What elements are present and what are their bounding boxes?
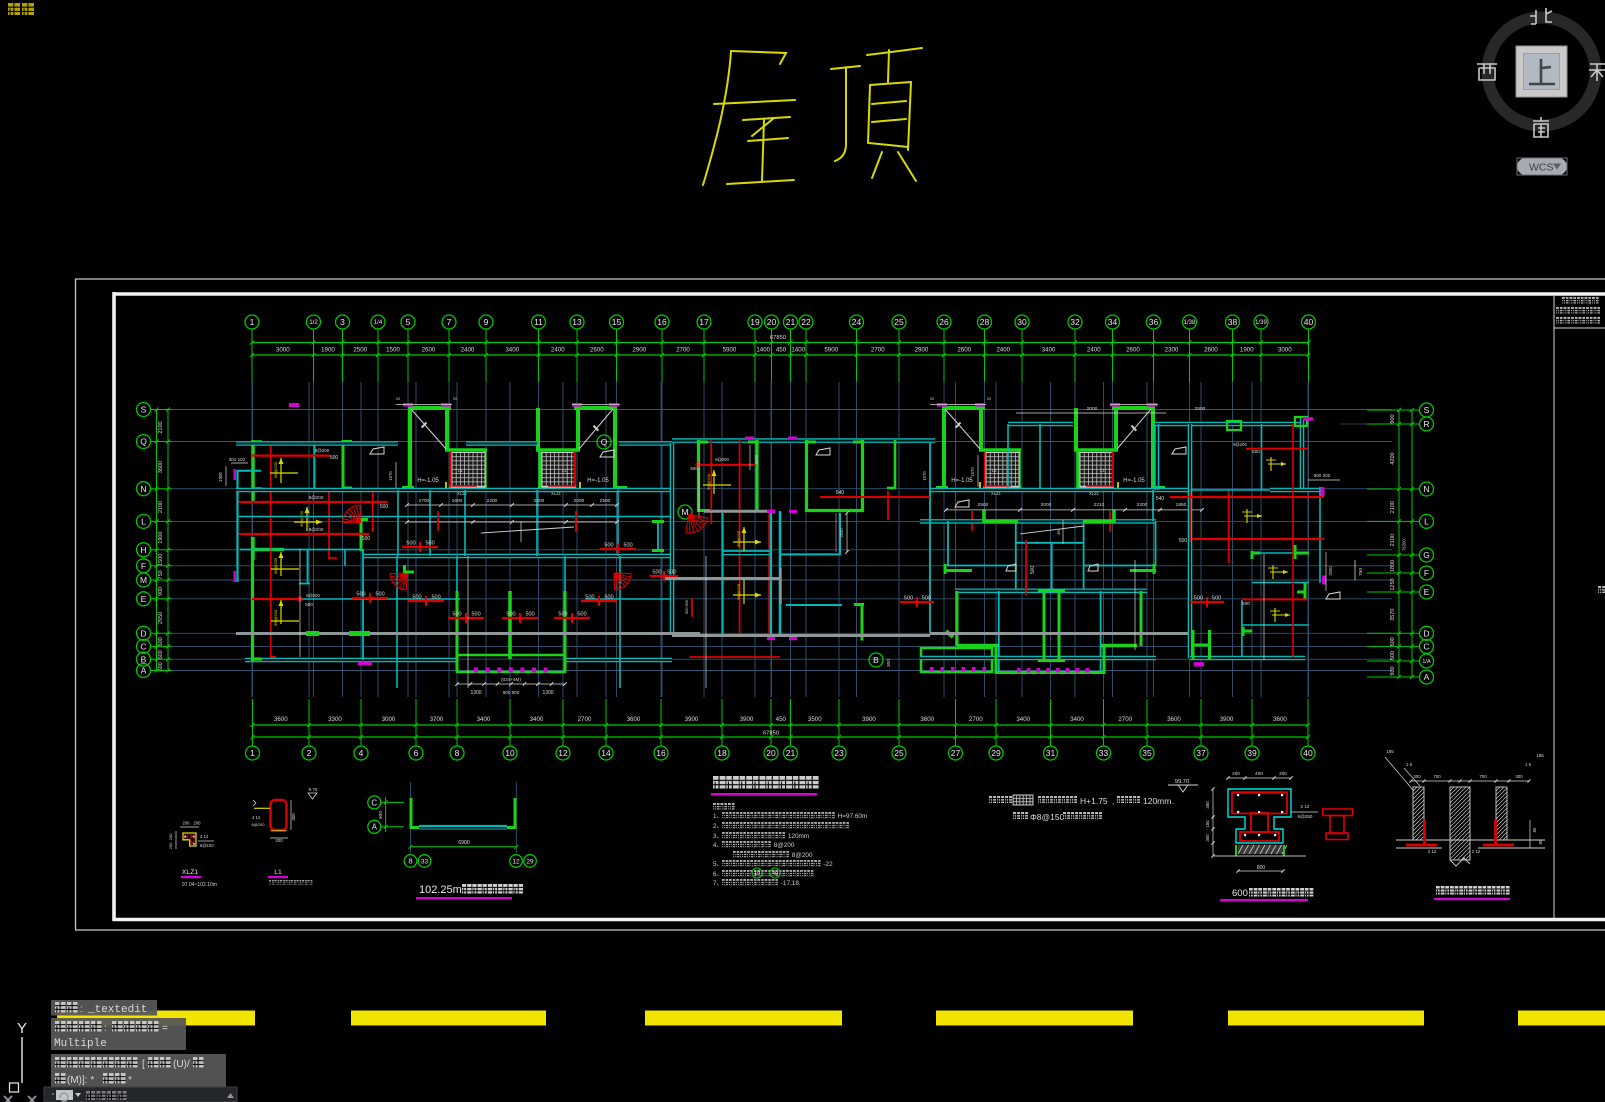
svg-text:36: 36 <box>1149 317 1159 327</box>
svg-text:97.04~102.10m: 97.04~102.10m <box>182 882 217 888</box>
svg-text:3570: 3570 <box>1390 609 1396 621</box>
svg-text:3500: 3500 <box>808 716 822 723</box>
svg-text:200: 200 <box>168 842 173 849</box>
svg-text:8: 8 <box>408 857 412 866</box>
svg-text:500: 500 <box>452 612 461 618</box>
svg-text:34: 34 <box>1108 317 1118 327</box>
svg-text:99.70: 99.70 <box>1175 779 1190 785</box>
svg-text:3000: 3000 <box>276 347 290 354</box>
svg-text:40: 40 <box>1303 748 1313 758</box>
svg-text:6@200: 6@200 <box>252 822 266 827</box>
svg-text:500: 500 <box>605 595 614 601</box>
svg-text:5: 5 <box>406 317 411 327</box>
svg-text:3600: 3600 <box>920 716 934 723</box>
svg-text:21: 21 <box>786 317 796 327</box>
svg-text:8@200: 8@200 <box>306 593 320 598</box>
svg-text:4 14: 4 14 <box>252 815 261 820</box>
svg-text:Q: Q <box>601 437 608 447</box>
svg-text:1/38: 1/38 <box>1184 320 1196 326</box>
svg-text:2100: 2100 <box>158 501 164 513</box>
svg-text:Y: Y <box>17 1020 27 1037</box>
svg-text:20: 20 <box>987 397 991 401</box>
svg-text:2: 2 <box>307 748 312 758</box>
svg-text:L1: L1 <box>992 468 997 473</box>
svg-text:-22: -22 <box>823 861 833 868</box>
svg-text:2600: 2600 <box>422 347 436 354</box>
svg-text:D: D <box>1423 628 1429 638</box>
svg-text:1/4: 1/4 <box>374 320 383 326</box>
svg-text:3 14: 3 14 <box>200 834 209 839</box>
svg-text:1、: 1、 <box>713 813 723 820</box>
svg-text:8@200: 8@200 <box>715 457 729 462</box>
svg-text:2200: 2200 <box>487 498 498 504</box>
svg-text:900: 900 <box>1390 666 1396 675</box>
svg-text:450: 450 <box>776 716 787 723</box>
svg-text:12: 12 <box>558 748 568 758</box>
svg-text:300: 300 <box>1515 774 1523 779</box>
svg-text:8@200: 8@200 <box>774 842 795 849</box>
svg-text:2200: 2200 <box>1137 502 1148 508</box>
svg-text:750: 750 <box>158 570 164 579</box>
svg-text:1400: 1400 <box>756 347 770 354</box>
svg-text:[: [ <box>142 1059 145 1070</box>
svg-text:2900: 2900 <box>915 347 929 354</box>
svg-text:3700: 3700 <box>430 716 444 723</box>
svg-text:20: 20 <box>930 397 934 401</box>
svg-text:3400: 3400 <box>530 716 544 723</box>
svg-text:4200: 4200 <box>1390 452 1396 464</box>
svg-text:31: 31 <box>1046 748 1056 758</box>
svg-text:22: 22 <box>801 317 811 327</box>
svg-text:1570: 1570 <box>754 454 759 465</box>
svg-text:9: 9 <box>484 317 489 327</box>
svg-text:=: = <box>162 1023 168 1034</box>
svg-text:800: 800 <box>1257 865 1266 871</box>
svg-text:500: 500 <box>1212 596 1221 602</box>
svg-text:2700: 2700 <box>1118 716 1132 723</box>
svg-text:,: , <box>1112 797 1114 806</box>
svg-text:500: 500 <box>1252 449 1260 454</box>
svg-text:500: 500 <box>578 612 587 618</box>
svg-text:500: 500 <box>624 543 633 549</box>
svg-text:29: 29 <box>991 748 1001 758</box>
svg-text:1900: 1900 <box>218 472 223 482</box>
svg-text:1500: 1500 <box>158 554 164 566</box>
svg-text:1: 1 <box>250 317 255 327</box>
svg-text:500: 500 <box>406 541 415 547</box>
svg-text:500: 500 <box>585 595 594 601</box>
svg-text:2900: 2900 <box>632 347 646 354</box>
svg-text:29: 29 <box>526 858 534 865</box>
svg-text:L: L <box>1424 517 1429 527</box>
svg-text:200: 200 <box>1232 771 1240 776</box>
svg-text:500: 500 <box>1242 601 1250 606</box>
svg-text:1400: 1400 <box>791 347 805 354</box>
svg-text:2500: 2500 <box>353 347 367 354</box>
svg-text:B: B <box>873 655 879 665</box>
svg-text:H+1.75: H+1.75 <box>1080 796 1108 806</box>
svg-text:C: C <box>140 642 146 652</box>
svg-text:2000: 2000 <box>1328 566 1333 576</box>
svg-text:200: 200 <box>194 821 202 826</box>
svg-text:1: 1 <box>250 748 255 758</box>
svg-text:150: 150 <box>1205 820 1210 828</box>
svg-text:R: R <box>1423 419 1429 429</box>
svg-text:H=-1.05: H=-1.05 <box>1123 478 1145 484</box>
svg-text:1600: 1600 <box>452 498 463 504</box>
svg-text:19: 19 <box>750 317 760 327</box>
svg-text:N: N <box>1423 484 1429 494</box>
svg-text:11: 11 <box>534 317 543 327</box>
svg-text:500: 500 <box>526 612 535 618</box>
svg-text:8@200: 8@200 <box>315 448 330 453</box>
svg-text:1250: 1250 <box>1390 578 1396 590</box>
svg-text:6@100: 6@100 <box>200 843 214 848</box>
svg-text:4、: 4、 <box>713 842 723 849</box>
svg-text:E: E <box>141 594 147 604</box>
svg-text:8: 8 <box>455 748 460 758</box>
svg-text:120mm: 120mm <box>788 833 809 840</box>
svg-text:25: 25 <box>894 317 904 327</box>
svg-text:S: S <box>141 405 147 415</box>
svg-text:*: * <box>128 1075 132 1086</box>
svg-text:3900: 3900 <box>1220 716 1234 723</box>
svg-text:600: 600 <box>158 637 164 646</box>
svg-text:85: 85 <box>1538 839 1543 844</box>
svg-text:500 500: 500 500 <box>685 600 689 614</box>
svg-text:3900: 3900 <box>740 716 754 723</box>
svg-text:14: 14 <box>601 748 611 758</box>
svg-text:500: 500 <box>426 541 435 547</box>
svg-text:37: 37 <box>1196 748 1206 758</box>
svg-text:2700: 2700 <box>419 498 430 504</box>
svg-text:23: 23 <box>834 748 844 758</box>
svg-text:1500: 1500 <box>386 347 400 354</box>
svg-text:1570: 1570 <box>388 471 393 481</box>
svg-text:24: 24 <box>852 317 862 327</box>
svg-text:38: 38 <box>1228 317 1238 327</box>
svg-text:500: 500 <box>305 602 313 607</box>
svg-text:M: M <box>681 507 688 517</box>
svg-text:2600: 2600 <box>1204 347 1218 354</box>
svg-text:9.75: 9.75 <box>309 787 318 792</box>
svg-text:350: 350 <box>1057 529 1061 535</box>
svg-text:2400: 2400 <box>461 347 475 354</box>
svg-text:L1: L1 <box>458 468 463 473</box>
svg-text:F: F <box>141 561 146 571</box>
svg-text:600: 600 <box>1390 637 1396 646</box>
svg-text:20: 20 <box>396 397 400 401</box>
svg-text:1/A: 1/A <box>1422 659 1431 665</box>
svg-text:67850: 67850 <box>770 335 786 341</box>
svg-text:6@250: 6@250 <box>1298 814 1313 819</box>
svg-text:2500: 2500 <box>600 498 611 504</box>
svg-text:900: 900 <box>378 811 384 819</box>
svg-text:13: 13 <box>572 317 582 327</box>
svg-text:500: 500 <box>380 504 389 510</box>
svg-text:900: 900 <box>158 587 164 596</box>
svg-text:Φ8@150: Φ8@150 <box>1030 812 1065 822</box>
svg-text:2700: 2700 <box>676 347 690 354</box>
svg-text:L1: L1 <box>1100 468 1105 473</box>
svg-text:B: B <box>141 654 147 664</box>
svg-text:2700: 2700 <box>969 716 983 723</box>
svg-text:15: 15 <box>612 317 622 327</box>
svg-text:Φ8@200: Φ8@200 <box>273 609 278 626</box>
svg-text:3600: 3600 <box>1167 716 1181 723</box>
svg-text:7: 7 <box>447 317 452 327</box>
svg-text:30: 30 <box>1017 317 1027 327</box>
svg-text:500: 500 <box>1194 596 1203 602</box>
svg-text:301 102: 301 102 <box>229 457 246 462</box>
svg-text:3600: 3600 <box>1273 716 1287 723</box>
svg-text:2300: 2300 <box>1165 347 1179 354</box>
svg-text:67850: 67850 <box>763 731 779 737</box>
svg-text:Φ8@200: Φ8@200 <box>273 557 278 574</box>
svg-text:3600: 3600 <box>274 716 288 723</box>
svg-text:500: 500 <box>376 592 385 598</box>
svg-text:E: E <box>1424 587 1430 597</box>
svg-text:8@200: 8@200 <box>309 495 324 500</box>
svg-text:700: 700 <box>1433 774 1441 779</box>
svg-text:2 12: 2 12 <box>1428 849 1437 854</box>
svg-text:400: 400 <box>291 813 296 821</box>
svg-text:500: 500 <box>904 596 913 602</box>
svg-text:33: 33 <box>1099 748 1109 758</box>
svg-text:C: C <box>371 798 377 807</box>
svg-text:18: 18 <box>717 748 727 758</box>
svg-text:20: 20 <box>767 317 777 327</box>
svg-text:2500: 2500 <box>1195 406 1206 412</box>
svg-text:2100: 2100 <box>1390 534 1396 546</box>
svg-text:500: 500 <box>652 570 661 576</box>
svg-text:500: 500 <box>330 455 339 461</box>
svg-text:102.25m: 102.25m <box>419 884 462 896</box>
svg-text:8@200: 8@200 <box>792 852 813 859</box>
svg-text:2 12: 2 12 <box>1301 804 1310 809</box>
svg-text:5900: 5900 <box>723 347 737 354</box>
svg-text:8@200: 8@200 <box>1233 442 1247 447</box>
svg-text:600: 600 <box>1390 651 1396 660</box>
svg-text:900 200: 900 200 <box>1314 473 1331 478</box>
svg-text:F: F <box>1424 568 1429 578</box>
svg-text:500: 500 <box>362 536 371 542</box>
svg-text:3600: 3600 <box>627 716 641 723</box>
svg-text:Multiple: Multiple <box>54 1038 107 1050</box>
svg-text:900: 900 <box>1390 414 1396 423</box>
svg-text:2600: 2600 <box>590 347 604 354</box>
svg-text:3000: 3000 <box>1278 347 1292 354</box>
svg-text:2200: 2200 <box>534 498 545 504</box>
svg-text:3400: 3400 <box>1016 716 1030 723</box>
svg-text:200: 200 <box>168 833 173 840</box>
svg-text:2100: 2100 <box>158 421 164 433</box>
svg-text:A: A <box>372 823 378 832</box>
svg-text:26: 26 <box>939 317 949 327</box>
svg-text:2、: 2、 <box>713 823 723 830</box>
svg-text:2600: 2600 <box>957 347 971 354</box>
svg-text:2 12: 2 12 <box>1472 849 1481 854</box>
svg-text:28: 28 <box>980 317 990 327</box>
svg-text:Φ8@200: Φ8@200 <box>299 510 304 527</box>
svg-text:35: 35 <box>1142 748 1152 758</box>
svg-text:2700: 2700 <box>871 347 885 354</box>
svg-text:27: 27 <box>951 748 961 758</box>
svg-text:1570: 1570 <box>922 471 927 481</box>
svg-text:H: H <box>140 545 146 555</box>
svg-text:2100: 2100 <box>1390 501 1396 513</box>
svg-text:3、: 3、 <box>713 833 723 840</box>
svg-text:300: 300 <box>886 659 892 667</box>
svg-text:_textedit: _textedit <box>87 1004 147 1016</box>
svg-text:3900: 3900 <box>685 716 699 723</box>
svg-text:16: 16 <box>656 748 666 758</box>
svg-text:-17,18.: -17,18. <box>781 880 801 887</box>
svg-text:40: 40 <box>772 871 778 877</box>
svg-text:600: 600 <box>1232 888 1248 899</box>
svg-text:500: 500 <box>432 595 441 601</box>
svg-text::: : <box>80 1004 83 1015</box>
svg-text:Φ8@200: Φ8@200 <box>736 530 741 547</box>
svg-text:1/39: 1/39 <box>1255 320 1267 326</box>
svg-text:3400: 3400 <box>1070 716 1084 723</box>
svg-text:200: 200 <box>275 838 283 843</box>
svg-text:S: S <box>1424 405 1430 415</box>
svg-text:500: 500 <box>1179 538 1188 544</box>
svg-text:32: 32 <box>1070 317 1080 327</box>
svg-text:1 6: 1 6 <box>1406 762 1413 767</box>
svg-text:19: 19 <box>754 871 760 877</box>
svg-text:500: 500 <box>472 612 481 618</box>
svg-text:(M)]: *: (M)]: * <box>67 1075 94 1086</box>
svg-text:G: G <box>1423 550 1430 560</box>
svg-text:(U)/: (U)/ <box>173 1059 190 1070</box>
svg-text:3300: 3300 <box>328 716 342 723</box>
svg-text:2700: 2700 <box>578 716 592 723</box>
svg-text:WCS: WCS <box>1529 162 1554 174</box>
svg-text:Φ8@200: Φ8@200 <box>736 583 741 600</box>
svg-text:20: 20 <box>766 748 776 758</box>
svg-text:2400: 2400 <box>1087 347 1101 354</box>
svg-text:400: 400 <box>1255 771 1263 776</box>
svg-text:16: 16 <box>657 317 667 327</box>
svg-text:1300: 1300 <box>542 690 553 696</box>
svg-text:200: 200 <box>183 821 191 826</box>
svg-text:1570: 1570 <box>970 467 975 477</box>
svg-text:20: 20 <box>453 397 457 401</box>
svg-text:1900: 1900 <box>321 347 335 354</box>
svg-text:M: M <box>140 575 147 585</box>
svg-text:Φ8@200: Φ8@200 <box>273 461 278 478</box>
svg-text:.: . <box>1172 797 1174 806</box>
svg-text:600 600: 600 600 <box>503 690 520 695</box>
svg-text:300: 300 <box>1413 774 1421 779</box>
svg-text:10: 10 <box>505 748 515 758</box>
svg-text:17: 17 <box>699 317 709 327</box>
svg-text:N: N <box>140 484 146 494</box>
svg-text:2500: 2500 <box>839 528 844 538</box>
svg-text:3400: 3400 <box>505 347 519 354</box>
svg-text:2600: 2600 <box>1126 347 1140 354</box>
svg-text:2210: 2210 <box>1094 502 1105 508</box>
svg-text:D: D <box>140 628 146 638</box>
svg-text:2500: 2500 <box>978 502 989 508</box>
svg-text:3400: 3400 <box>477 716 491 723</box>
svg-text:A: A <box>141 666 147 676</box>
svg-text:Φ8@200: Φ8@200 <box>706 473 711 490</box>
svg-text:300: 300 <box>1205 834 1210 842</box>
svg-text:350: 350 <box>1205 801 1210 809</box>
svg-text:8@200: 8@200 <box>309 527 324 532</box>
svg-text:2950: 2950 <box>158 612 164 624</box>
svg-text:500: 500 <box>558 612 567 618</box>
svg-text:L1: L1 <box>274 869 282 876</box>
svg-text:2400: 2400 <box>551 347 565 354</box>
svg-text:700: 700 <box>1479 774 1487 779</box>
svg-text:6: 6 <box>414 748 419 758</box>
svg-text:1/2: 1/2 <box>309 320 318 326</box>
svg-text:H=97.60m: H=97.60m <box>838 813 868 820</box>
svg-text:500: 500 <box>1030 566 1036 575</box>
svg-text:C: C <box>1423 642 1429 652</box>
svg-text:500: 500 <box>604 543 613 549</box>
svg-text:40: 40 <box>1304 317 1314 327</box>
svg-text:120mm: 120mm <box>1143 796 1171 806</box>
svg-text:2000: 2000 <box>1041 502 1052 508</box>
svg-text:2400: 2400 <box>996 347 1010 354</box>
svg-text:750: 750 <box>1358 568 1364 576</box>
svg-text:L1: L1 <box>562 468 567 473</box>
svg-text:6900: 6900 <box>458 840 470 846</box>
svg-text:500: 500 <box>667 570 676 576</box>
svg-text:XLZ1: XLZ1 <box>182 869 198 876</box>
svg-text:L: L <box>141 517 146 527</box>
svg-text:25: 25 <box>894 748 904 758</box>
svg-text:500: 500 <box>506 612 515 618</box>
svg-text:39: 39 <box>1247 748 1257 758</box>
svg-text:185: 185 <box>1536 753 1544 758</box>
svg-text:A: A <box>1424 672 1430 682</box>
svg-text:6、: 6、 <box>713 871 723 878</box>
svg-text:500: 500 <box>412 595 421 601</box>
svg-text:21: 21 <box>786 748 796 758</box>
svg-text:1850: 1850 <box>1176 502 1187 508</box>
svg-text:3000: 3000 <box>382 716 396 723</box>
svg-text:85: 85 <box>1532 827 1537 832</box>
svg-text:H=-1.05: H=-1.05 <box>587 478 609 484</box>
svg-text:540: 540 <box>836 490 845 496</box>
svg-text:Q: Q <box>140 437 147 447</box>
svg-text:2000: 2000 <box>574 498 585 504</box>
svg-text:540: 540 <box>1156 496 1165 502</box>
svg-text::: : <box>104 1023 107 1034</box>
svg-text:5、: 5、 <box>713 861 723 868</box>
svg-text:H=-1.05: H=-1.05 <box>951 478 973 484</box>
svg-text:3: 3 <box>340 317 345 327</box>
svg-text:2000: 2000 <box>1087 406 1098 412</box>
svg-text:600: 600 <box>158 650 164 659</box>
svg-text:5900: 5900 <box>824 347 838 354</box>
svg-text:185: 185 <box>1386 749 1394 754</box>
svg-text:1300: 1300 <box>470 690 481 696</box>
svg-text:1900: 1900 <box>158 531 164 543</box>
svg-text:7、: 7、 <box>713 880 723 887</box>
svg-text:12: 12 <box>512 858 520 865</box>
svg-text:500: 500 <box>922 596 931 602</box>
svg-text:76200: 76200 <box>1402 539 1407 551</box>
svg-text:1900: 1900 <box>1240 347 1254 354</box>
svg-text:4: 4 <box>359 748 364 758</box>
